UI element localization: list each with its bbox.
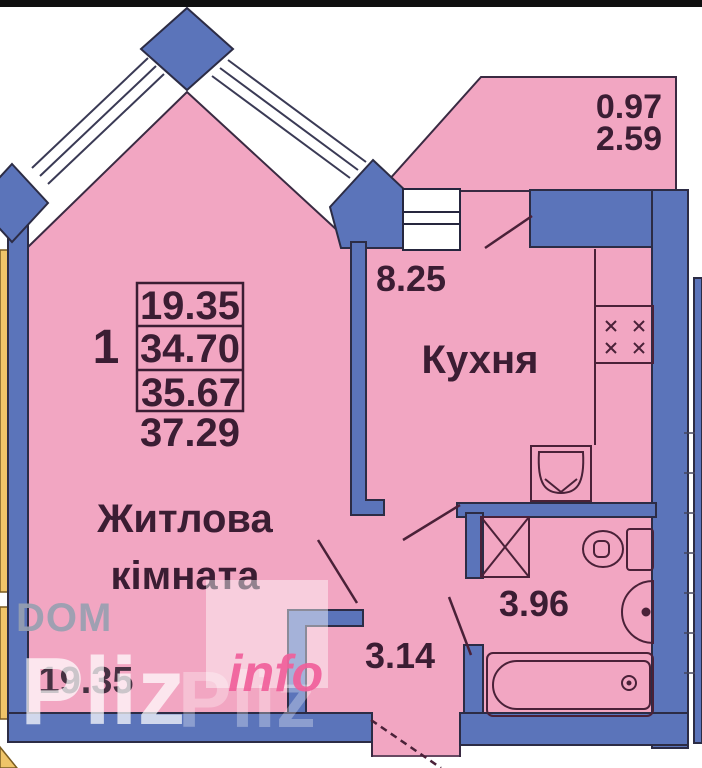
hallway-area: 3.14 xyxy=(365,635,435,676)
living-room-label-line1: Житлова xyxy=(96,497,273,541)
wall-bathroom-left-lower xyxy=(464,645,483,715)
kitchen-area: 8.25 xyxy=(376,258,446,299)
kitchen-label: Кухня xyxy=(422,338,539,382)
watermark-info: info xyxy=(228,645,323,703)
table-row-2: 34.70 xyxy=(140,327,240,371)
vent-shaft xyxy=(403,189,460,250)
table-row-3: 35.67 xyxy=(141,371,241,415)
table-total: 37.29 xyxy=(140,411,240,455)
screenshot-top-bar xyxy=(0,0,702,7)
watermark-pliz: Pliz xyxy=(20,638,185,745)
table-row-1: 19.35 xyxy=(140,284,240,328)
rooms-count: 1 xyxy=(93,321,120,374)
wall-bathroom-top xyxy=(457,503,656,517)
floor-plan: 1 19.35 34.70 35.67 37.29 8.25 Кухня 0.9… xyxy=(0,0,702,768)
wall-neighbor-strip xyxy=(694,278,702,743)
floor-plan-screenshot: 1 19.35 34.70 35.67 37.29 8.25 Кухня 0.9… xyxy=(0,0,702,768)
wall-bottom-right xyxy=(460,713,688,745)
wall-right-exterior xyxy=(652,190,688,748)
bathroom-area: 3.96 xyxy=(499,583,569,624)
balcony-area-lower: 2.59 xyxy=(596,120,662,158)
watermark-dom: DOM xyxy=(16,596,112,640)
